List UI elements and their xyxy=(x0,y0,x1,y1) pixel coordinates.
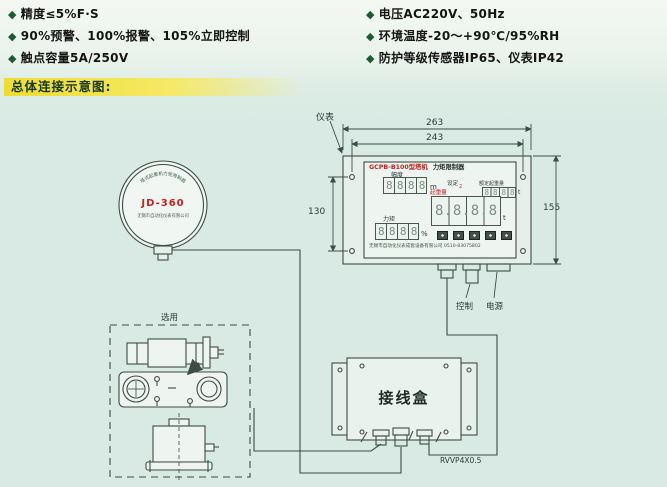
panel-key-button xyxy=(469,231,480,240)
optional-label: 选用 xyxy=(161,311,178,323)
rated-weight-label: 额定起重量 xyxy=(479,180,504,187)
gauge-model-label: JD-360 xyxy=(133,198,193,209)
junction-box-label: 接线盒 xyxy=(347,387,461,408)
panel-key-button xyxy=(485,231,496,240)
moment-display: 8888 xyxy=(375,223,419,240)
weight-display: 8.8.8.8 xyxy=(431,196,501,226)
weight-label: 起重量 xyxy=(430,188,447,196)
panel-footer-text: 无锡市自动化仪表成套设备有限公司 0510-83075802 xyxy=(369,243,481,249)
dim-mount-height: 130 xyxy=(308,207,325,217)
moment-label: 力矩 xyxy=(383,214,395,223)
instrument-label: 仪表 xyxy=(316,110,334,123)
power-port-label: 电源 xyxy=(486,300,503,312)
panel-key-row xyxy=(437,231,512,240)
panel-key-button xyxy=(501,231,512,240)
panel-title: GCPB-B100型塔机 力矩限制器 xyxy=(369,162,464,171)
panel-title-black: 力矩限制器 xyxy=(433,164,464,171)
setting-indicator: 2 xyxy=(459,184,462,190)
control-port-label: 控制 xyxy=(456,300,473,312)
controller-connectors xyxy=(438,264,510,298)
panel-key-button xyxy=(453,231,464,240)
connection-diagram: 塔式起重机力矩限制器 xyxy=(0,0,667,487)
rated-weight-unit: t xyxy=(518,189,520,196)
dim-outer-height: 155 xyxy=(543,203,560,213)
cable-spec-label: RVVP4X0.5 xyxy=(440,456,481,465)
panel-key-button xyxy=(437,231,448,240)
dim-mount-span: 243 xyxy=(426,133,443,143)
canister-load-cell xyxy=(146,413,219,481)
weight-unit: t xyxy=(503,214,506,222)
pin-load-cell xyxy=(127,337,224,368)
moment-unit: % xyxy=(421,230,428,238)
setting-label: 设定 xyxy=(447,179,458,187)
amplitude-display: 8888 xyxy=(383,177,427,194)
dim-outer-width: 263 xyxy=(426,118,443,128)
manual-page: ◆精度≤5%F·S ◆90%预警、100%报警、105%立即控制 ◆触点容量5A… xyxy=(0,0,667,487)
gauge-sub-text: 无锡市自动化仪表有限公司 xyxy=(126,213,200,219)
plate-load-cell xyxy=(119,372,227,407)
